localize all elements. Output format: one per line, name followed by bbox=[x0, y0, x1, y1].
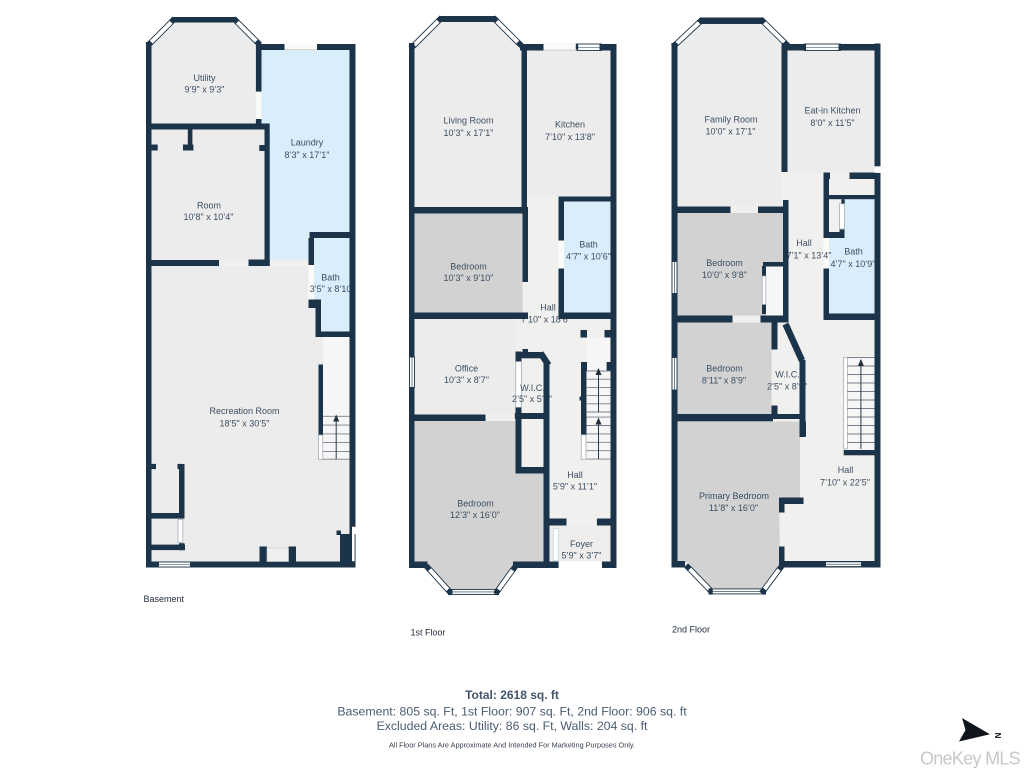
svg-text:4’7" x 10’9": 4’7" x 10’9" bbox=[831, 259, 876, 269]
svg-text:Foyer: Foyer bbox=[570, 539, 593, 549]
svg-text:Bath: Bath bbox=[844, 247, 863, 257]
svg-text:Laundry: Laundry bbox=[291, 138, 324, 148]
svg-text:Office: Office bbox=[455, 364, 478, 374]
svg-text:8’3" x 17’1": 8’3" x 17’1" bbox=[285, 150, 330, 160]
svg-text:Living Room: Living Room bbox=[443, 116, 493, 126]
svg-text:10’3" x 9’10": 10’3" x 9’10" bbox=[444, 273, 494, 283]
svg-text:OneKey MLS: OneKey MLS bbox=[920, 749, 1021, 768]
svg-text:10’3" x 8’7": 10’3" x 8’7" bbox=[444, 375, 489, 385]
svg-text:7’10" x 22’5": 7’10" x 22’5" bbox=[820, 478, 870, 488]
svg-text:Hall: Hall bbox=[540, 303, 556, 313]
svg-text:N: N bbox=[993, 733, 1002, 739]
svg-text:Utility: Utility bbox=[194, 73, 216, 83]
svg-text:5’9" x 3’7": 5’9" x 3’7" bbox=[562, 551, 602, 561]
svg-text:2nd Floor: 2nd Floor bbox=[672, 625, 710, 635]
svg-text:5’9" x 11’1": 5’9" x 11’1" bbox=[553, 482, 597, 492]
svg-text:10’3" x 17’1": 10’3" x 17’1" bbox=[444, 128, 494, 138]
svg-text:Basement: 805 sq. Ft, 1st Floo: Basement: 805 sq. Ft, 1st Floor: 907 sq.… bbox=[337, 704, 687, 718]
svg-text:Hall: Hall bbox=[796, 238, 812, 248]
svg-text:7’10" x 13’8": 7’10" x 13’8" bbox=[545, 132, 595, 142]
svg-text:W.I.C.: W.I.C. bbox=[520, 383, 545, 393]
svg-text:12’3" x 16’0": 12’3" x 16’0" bbox=[450, 510, 500, 520]
svg-text:Primary Bedroom: Primary Bedroom bbox=[699, 491, 769, 501]
svg-text:W.I.C.: W.I.C. bbox=[775, 370, 800, 380]
svg-text:Bedroom: Bedroom bbox=[706, 258, 743, 268]
svg-text:8’11" x 8’9": 8’11" x 8’9" bbox=[702, 376, 746, 386]
svg-text:10’8" x 10’4": 10’8" x 10’4" bbox=[184, 212, 234, 222]
svg-text:Excluded Areas: Utility: 86 sq: Excluded Areas: Utility: 86 sq. Ft, Wall… bbox=[377, 719, 648, 733]
svg-text:Bath: Bath bbox=[579, 240, 598, 250]
svg-text:3’5" x 8’10: 3’5" x 8’10 bbox=[310, 284, 352, 294]
svg-text:Family Room: Family Room bbox=[704, 115, 757, 125]
svg-text:Hall: Hall bbox=[838, 465, 854, 475]
svg-text:Bedroom: Bedroom bbox=[706, 364, 743, 374]
svg-text:Bath: Bath bbox=[321, 273, 340, 283]
svg-text:Room: Room bbox=[197, 201, 221, 211]
svg-text:11’8" x 16’0": 11’8" x 16’0" bbox=[709, 503, 758, 513]
svg-text:10’0" x 9’8": 10’0" x 9’8" bbox=[702, 270, 747, 280]
svg-text:1st Floor: 1st Floor bbox=[411, 628, 446, 638]
svg-text:8’0" x 11’5": 8’0" x 11’5" bbox=[810, 118, 854, 128]
svg-text:All Floor Plans Are Approximat: All Floor Plans Are Approximate And Inte… bbox=[389, 741, 635, 750]
svg-text:18’5" x 30’5": 18’5" x 30’5" bbox=[220, 419, 270, 429]
svg-text:Total: 2618 sq. ft: Total: 2618 sq. ft bbox=[465, 688, 559, 702]
svg-text:Kitchen: Kitchen bbox=[555, 120, 585, 130]
svg-text:Eat-in Kitchen: Eat-in Kitchen bbox=[804, 106, 860, 116]
svg-text:Bedroom: Bedroom bbox=[450, 262, 487, 272]
svg-text:Bedroom: Bedroom bbox=[457, 499, 494, 509]
svg-text:Recreation Room: Recreation Room bbox=[209, 406, 279, 416]
svg-text:4’7" x 10’6": 4’7" x 10’6" bbox=[566, 252, 611, 262]
svg-text:9’9" x 9’3": 9’9" x 9’3" bbox=[185, 85, 225, 95]
svg-text:Basement: Basement bbox=[144, 594, 185, 604]
svg-text:10’0" x 17’1": 10’0" x 17’1" bbox=[706, 127, 756, 137]
svg-text:7’1" x 13’4": 7’1" x 13’4" bbox=[787, 251, 832, 261]
svg-text:Hall: Hall bbox=[567, 470, 583, 480]
